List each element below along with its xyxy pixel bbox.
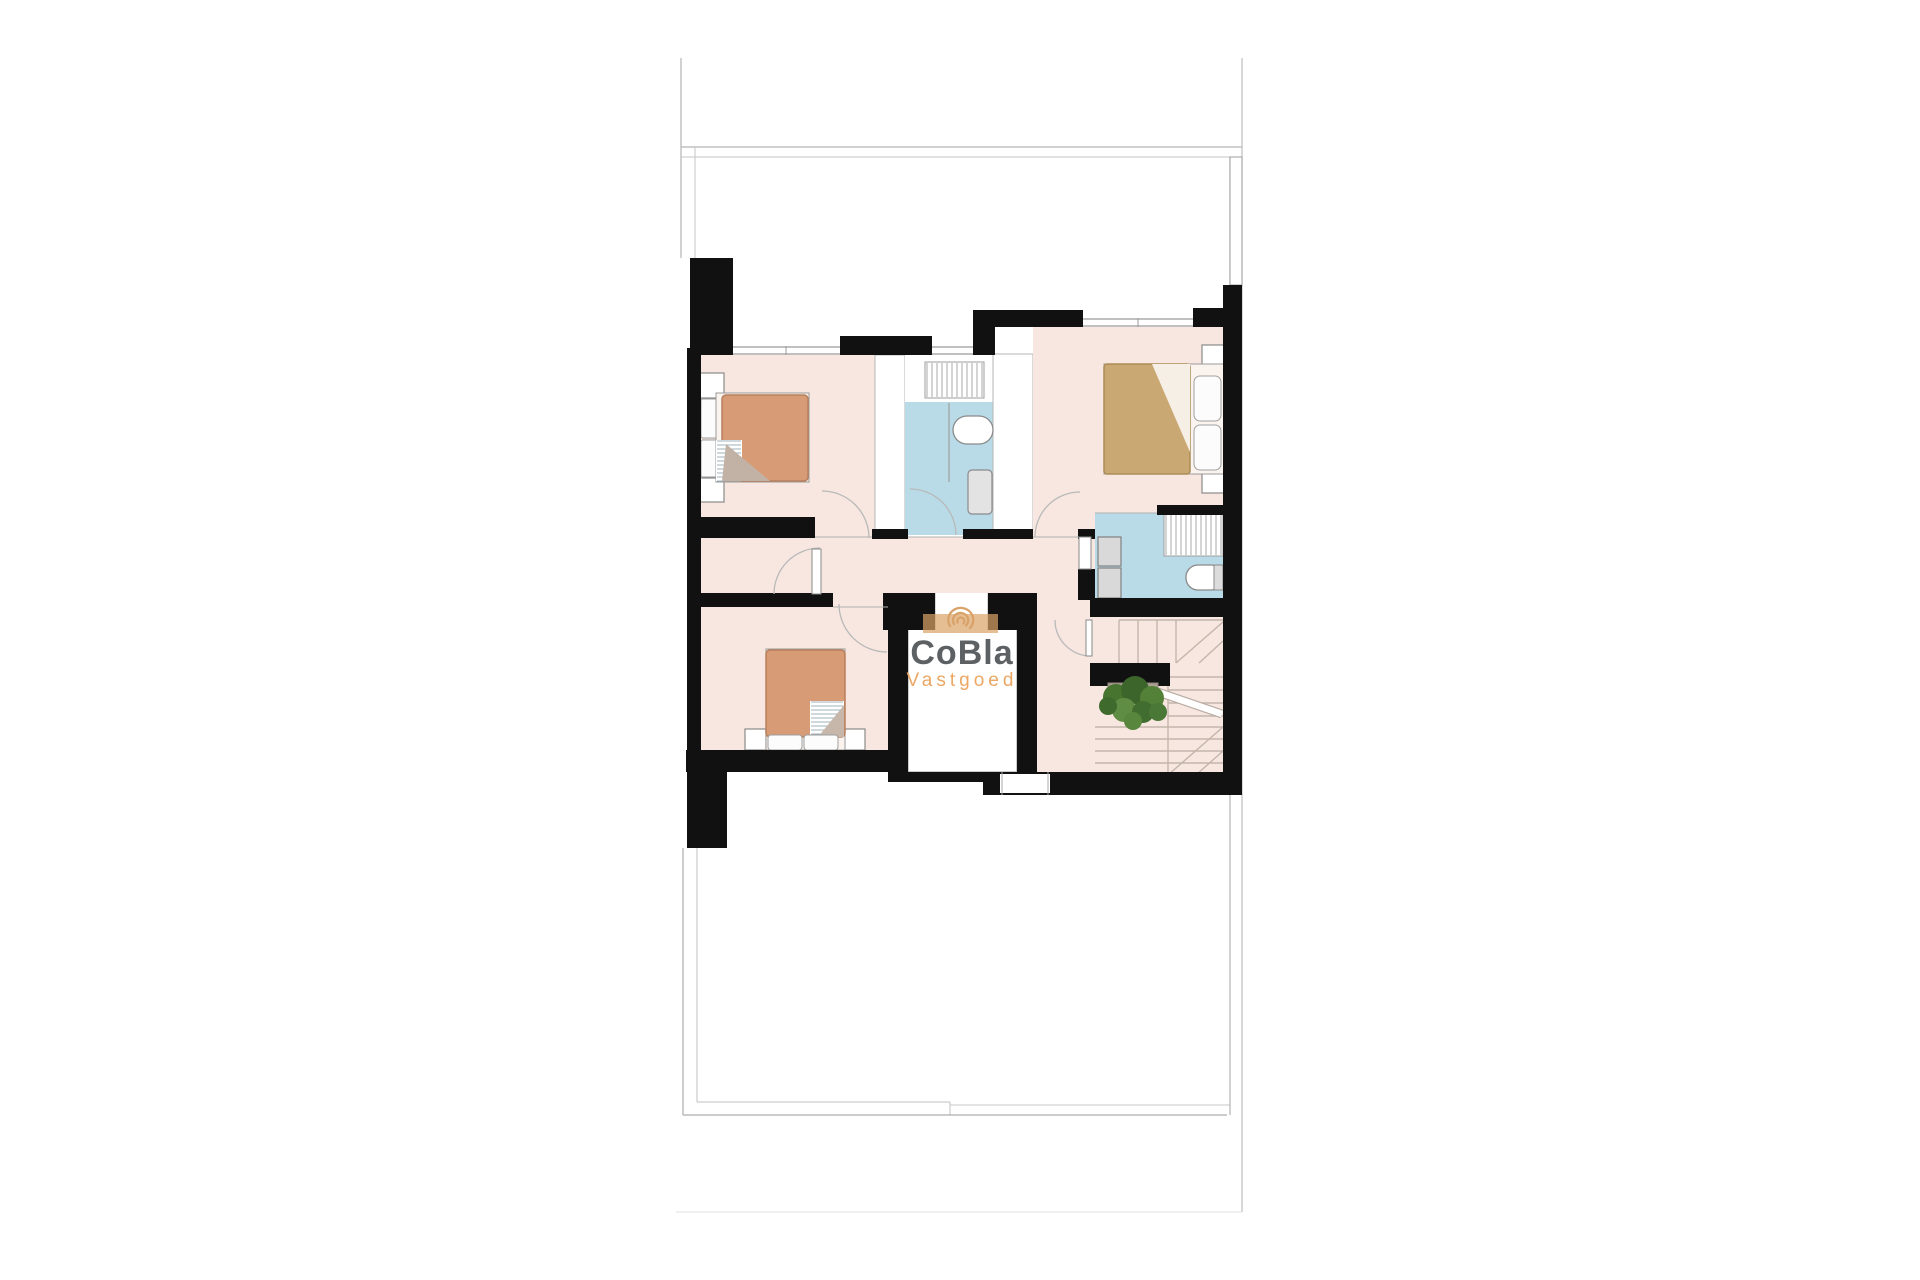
wall-corner-bottom-left-v bbox=[687, 772, 727, 848]
partition-wall-1 bbox=[875, 355, 905, 538]
door-leaf bbox=[812, 549, 821, 594]
pillow bbox=[768, 735, 802, 750]
wall-corner-bottom-left bbox=[686, 750, 733, 772]
wall-right bbox=[1223, 285, 1242, 795]
logo-spiral-icon bbox=[944, 606, 978, 637]
wall-stub-hall-b bbox=[963, 529, 1033, 539]
pillow bbox=[804, 735, 838, 750]
partition-wall-2 bbox=[993, 354, 1033, 531]
wall-bedroom-3-bottom bbox=[733, 750, 907, 772]
logo-title: CoBla bbox=[899, 636, 1025, 670]
wall-bottom-under-void bbox=[888, 772, 983, 782]
door-leaf bbox=[1079, 537, 1091, 569]
plant-foliage bbox=[1099, 697, 1117, 715]
nightstand bbox=[745, 729, 766, 750]
wall-bedroom-2-top-left bbox=[995, 310, 1083, 327]
nightstand bbox=[844, 729, 865, 750]
pillow bbox=[1194, 376, 1221, 421]
party-wall-column bbox=[1230, 157, 1242, 285]
chimney-pillar bbox=[690, 258, 733, 355]
wall-bedroom-3-top bbox=[701, 593, 833, 607]
door-leaf bbox=[1086, 620, 1092, 656]
wall-left bbox=[687, 348, 701, 772]
watermark-logo: CoBla Vastgoed bbox=[899, 605, 1025, 692]
toilet-cistern bbox=[1214, 565, 1223, 590]
vanity-sink bbox=[1098, 568, 1121, 598]
wall-stub-hall-a bbox=[872, 529, 908, 539]
window-bottom-opening bbox=[1000, 774, 1050, 793]
plant-foliage bbox=[1124, 712, 1142, 730]
wall-bathroom-2-left-b bbox=[1078, 569, 1095, 600]
logo-subtitle: Vastgoed bbox=[899, 671, 1025, 692]
wall-bathroom-2-top bbox=[1157, 505, 1223, 515]
vanity-sink bbox=[1098, 537, 1121, 566]
radiator bbox=[1164, 514, 1223, 556]
wall-bathroom-2-bottom bbox=[1090, 598, 1242, 617]
plant-foliage bbox=[1149, 703, 1167, 721]
radiator bbox=[925, 362, 984, 398]
floor-plan-canvas: CoBla Vastgoed bbox=[0, 0, 1920, 1280]
wall-bedroom-1-top bbox=[840, 336, 932, 355]
wall-bathroom-1-corner bbox=[973, 310, 995, 355]
pillow bbox=[1194, 425, 1221, 470]
wall-bedroom-1-bottom bbox=[701, 517, 815, 538]
washbasin bbox=[953, 416, 993, 444]
toilet bbox=[968, 470, 992, 514]
